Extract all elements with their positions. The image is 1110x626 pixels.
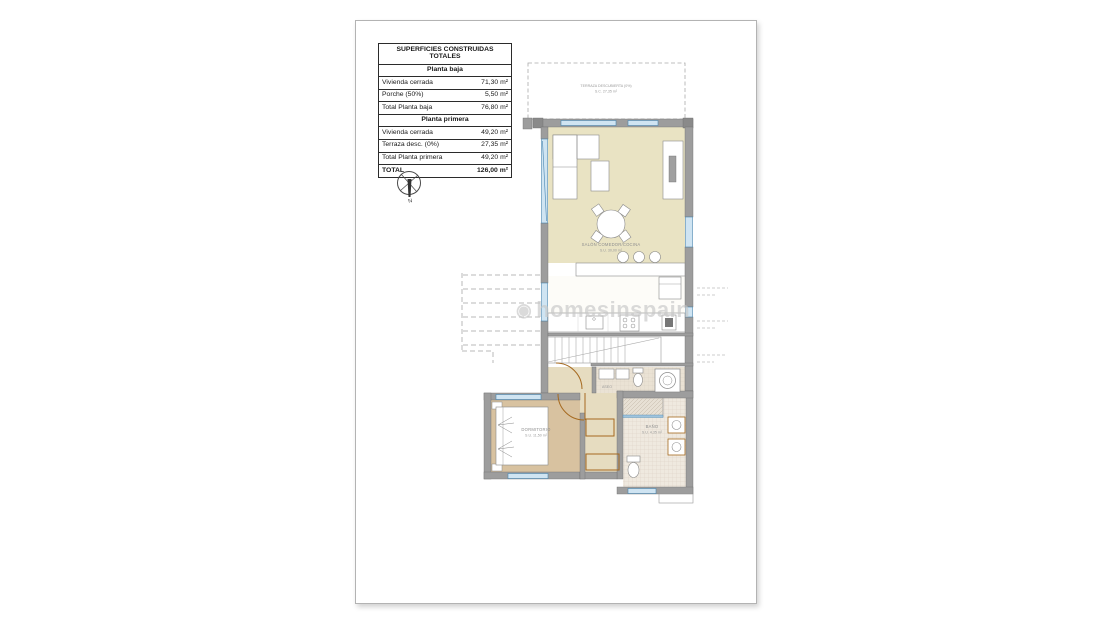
- washing-machine-icon: [655, 369, 680, 392]
- dining-table: [591, 204, 631, 243]
- kitchen-counter: [548, 313, 685, 332]
- aseo-sink-icon: [616, 369, 629, 379]
- page-canvas: SUPERFICIES CONSTRUIDAS TOTALES Planta b…: [0, 0, 1110, 626]
- hob-icon: [620, 315, 639, 331]
- terrace-area-label: S.C. 27,35 m²: [595, 90, 618, 94]
- compass-north-icon: N: [398, 172, 421, 205]
- living-label: SALÓN COMEDOR/COCINA: [582, 242, 641, 247]
- floor-plan-drawing: N TERRAZA DESCUBIERTA (0%) S.C. 27,35 m²: [356, 21, 756, 603]
- terrace-area: TERRAZA DESCUBIERTA (0%) S.C. 27,35 m²: [528, 63, 685, 119]
- compass-north-label: N: [408, 198, 413, 205]
- kitchen-tall-unit: [659, 277, 681, 299]
- aseo-sink-icon: [599, 369, 614, 379]
- aseo-label: ASEO: [602, 385, 612, 389]
- living-area-label: S.U. 30,00 m²: [600, 249, 623, 253]
- bathroom-sink-icon: [668, 439, 685, 455]
- pergola-dashed-lines: [462, 273, 546, 363]
- bathroom-sink-icon: [668, 417, 685, 433]
- plan-sheet: SUPERFICIES CONSTRUIDAS TOTALES Planta b…: [355, 20, 757, 604]
- kitchen-sink-icon: [586, 316, 603, 329]
- level-marks: [697, 288, 728, 362]
- bedroom-area-label: S.U. 11,50 m²: [525, 434, 548, 438]
- shower-icon: [623, 398, 663, 418]
- hall-landing-floor: [548, 367, 595, 393]
- bathroom-label: BAÑO: [646, 424, 659, 429]
- aseo-toilet-icon: [633, 368, 643, 387]
- tv-unit: [663, 141, 683, 199]
- bathroom-area-label: S.U. 4,35 m²: [642, 431, 663, 435]
- entry-step: [659, 494, 693, 503]
- stairs: [548, 337, 661, 363]
- bedroom-label: DORMITORIO: [521, 427, 551, 432]
- terrace-label: TERRAZA DESCUBIERTA (0%): [580, 84, 631, 88]
- toilet-icon: [627, 456, 640, 478]
- coffee-table: [591, 161, 609, 191]
